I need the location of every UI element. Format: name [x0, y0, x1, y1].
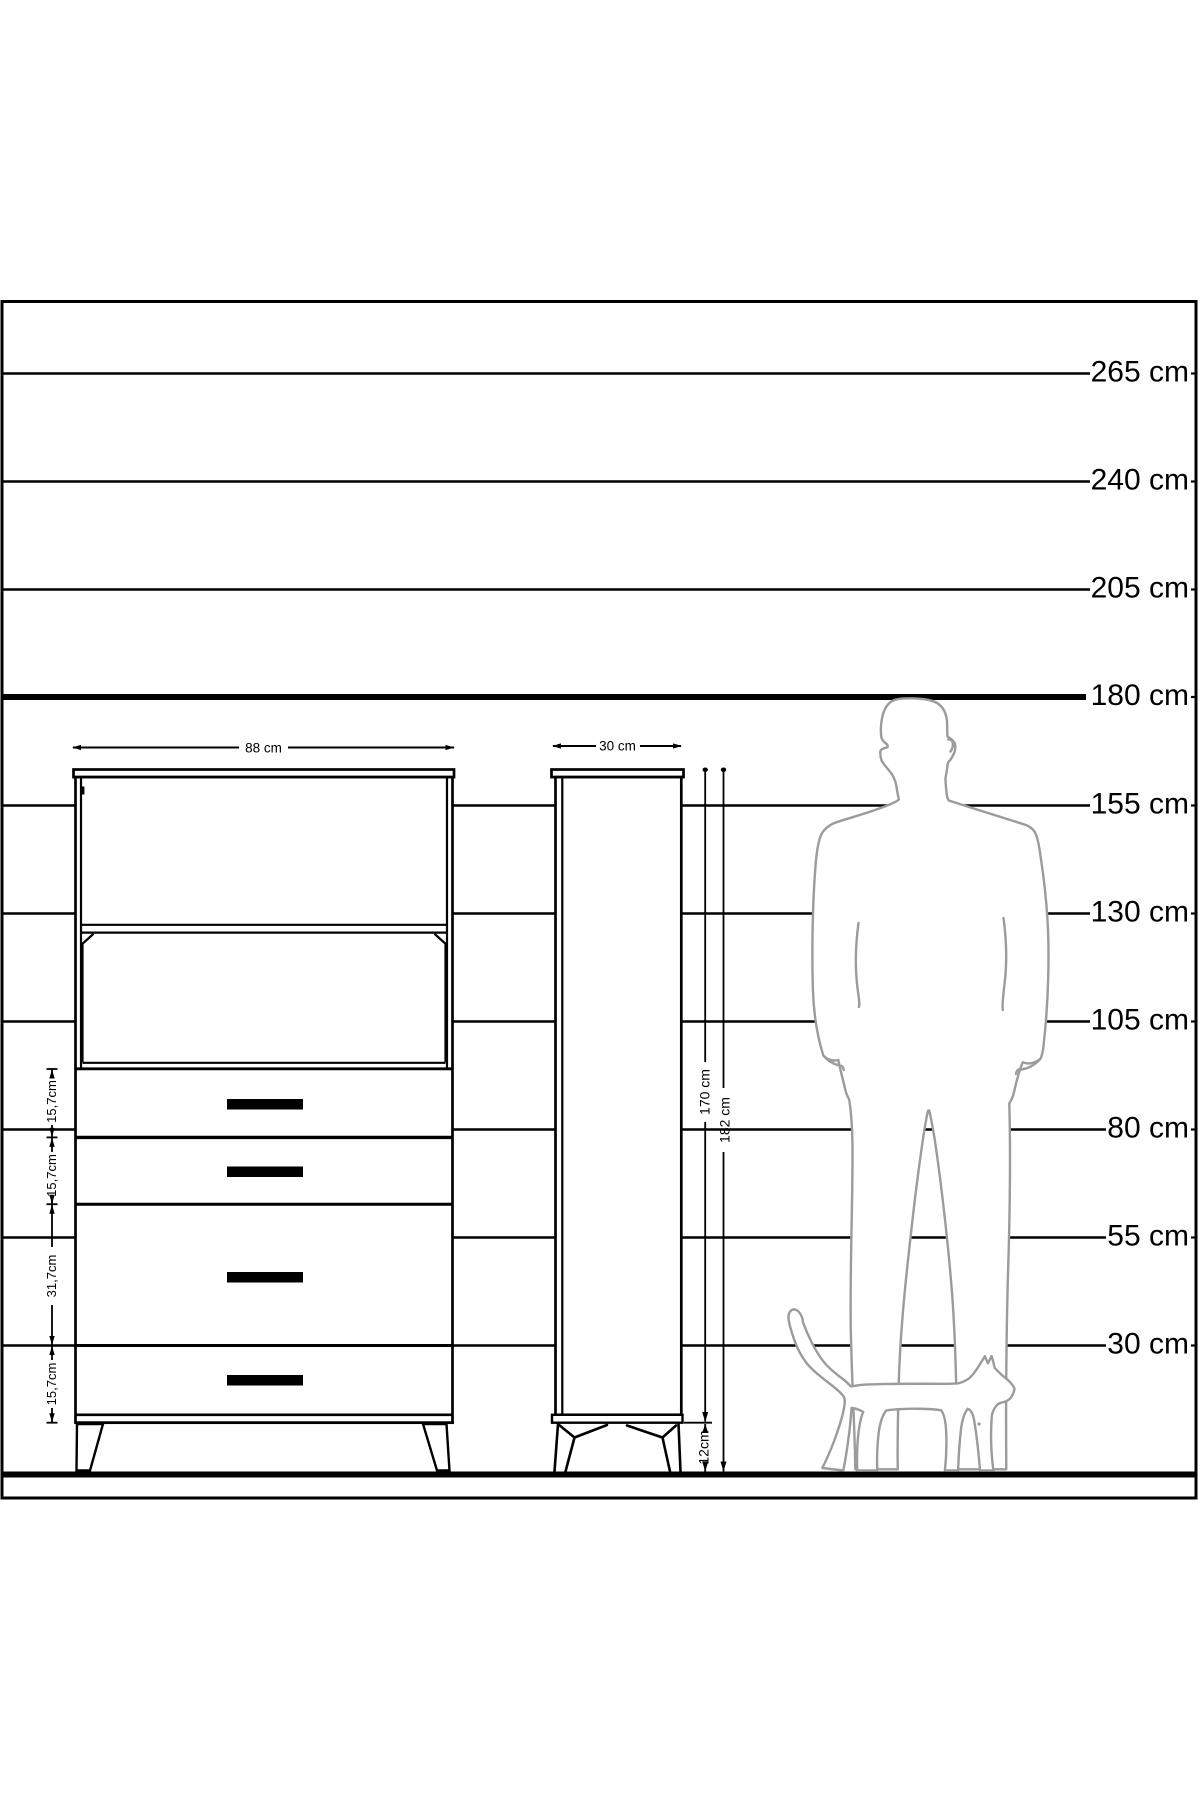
svg-text:155 cm: 155 cm — [1091, 788, 1189, 821]
svg-text:130 cm: 130 cm — [1091, 896, 1189, 929]
svg-text:240 cm: 240 cm — [1091, 464, 1189, 497]
svg-text:265 cm: 265 cm — [1091, 356, 1189, 389]
svg-text:30 cm: 30 cm — [1107, 1328, 1189, 1361]
svg-text:88 cm: 88 cm — [245, 741, 282, 756]
svg-text:170 cm: 170 cm — [697, 1069, 713, 1115]
svg-text:180 cm: 180 cm — [1091, 679, 1189, 712]
svg-text:31,7cm: 31,7cm — [44, 1255, 59, 1298]
svg-text:15,7cm: 15,7cm — [44, 1363, 59, 1406]
svg-text:80 cm: 80 cm — [1107, 1112, 1189, 1145]
svg-text:105 cm: 105 cm — [1091, 1004, 1189, 1037]
svg-text:205 cm: 205 cm — [1091, 572, 1189, 605]
svg-text:15,7cm: 15,7cm — [44, 1154, 59, 1197]
svg-text:55 cm: 55 cm — [1107, 1220, 1189, 1253]
svg-text:15,7cm: 15,7cm — [44, 1080, 59, 1123]
svg-text:182 cm: 182 cm — [717, 1097, 733, 1143]
svg-text:30 cm: 30 cm — [599, 739, 636, 754]
svg-text:12cm: 12cm — [696, 1430, 712, 1464]
